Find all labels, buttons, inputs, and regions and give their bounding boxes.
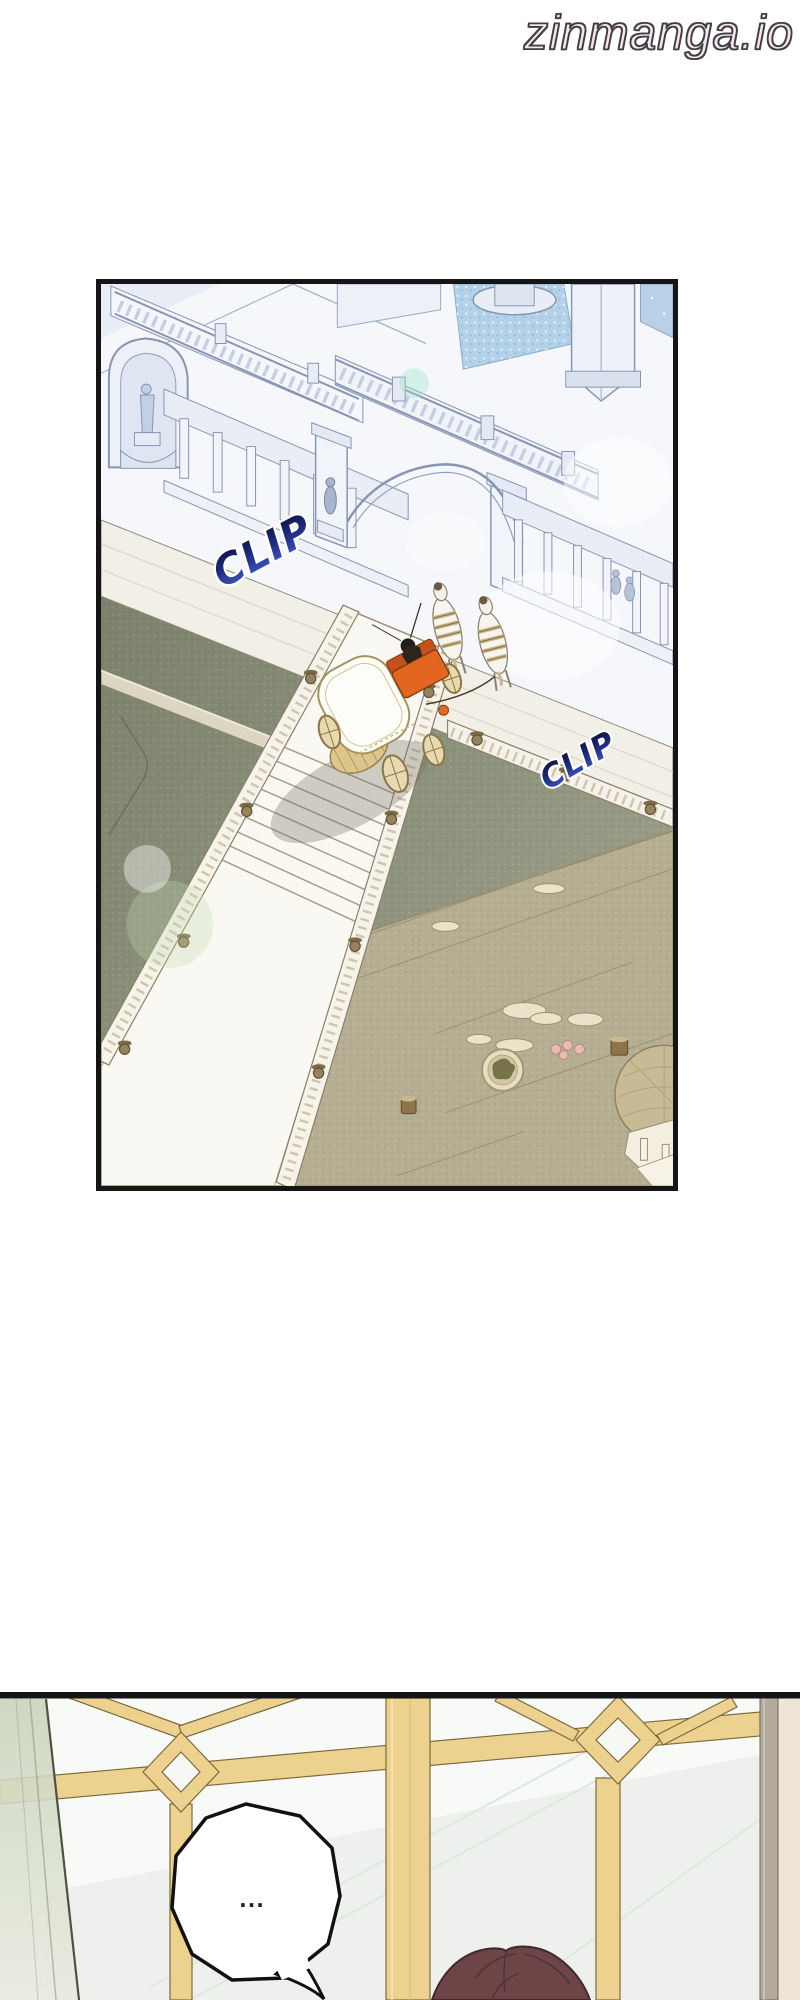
fountain [453, 284, 573, 369]
garden-medallion [482, 1049, 523, 1091]
arch-balustrade [335, 355, 598, 500]
speech-bubble-text: ... [239, 1888, 265, 1912]
panel-top-border [0, 1692, 800, 1699]
carriage-lamp [439, 705, 449, 715]
site-watermark: zinmanga.io [524, 6, 794, 61]
bottom-panel: ... [0, 1692, 800, 2000]
pool-window [641, 284, 673, 338]
main-panel: CLIP CLIP [96, 279, 678, 1191]
window-frame-right [760, 1698, 800, 2000]
palace-upper-wall [337, 284, 440, 328]
manga-reader-page: zinmanga.io [0, 0, 800, 2000]
lattice-right-mullion [596, 1778, 620, 2000]
colonnade-statues [611, 570, 635, 601]
corner-pillar [566, 284, 641, 401]
sfx-clip-1: CLIP [204, 504, 321, 598]
